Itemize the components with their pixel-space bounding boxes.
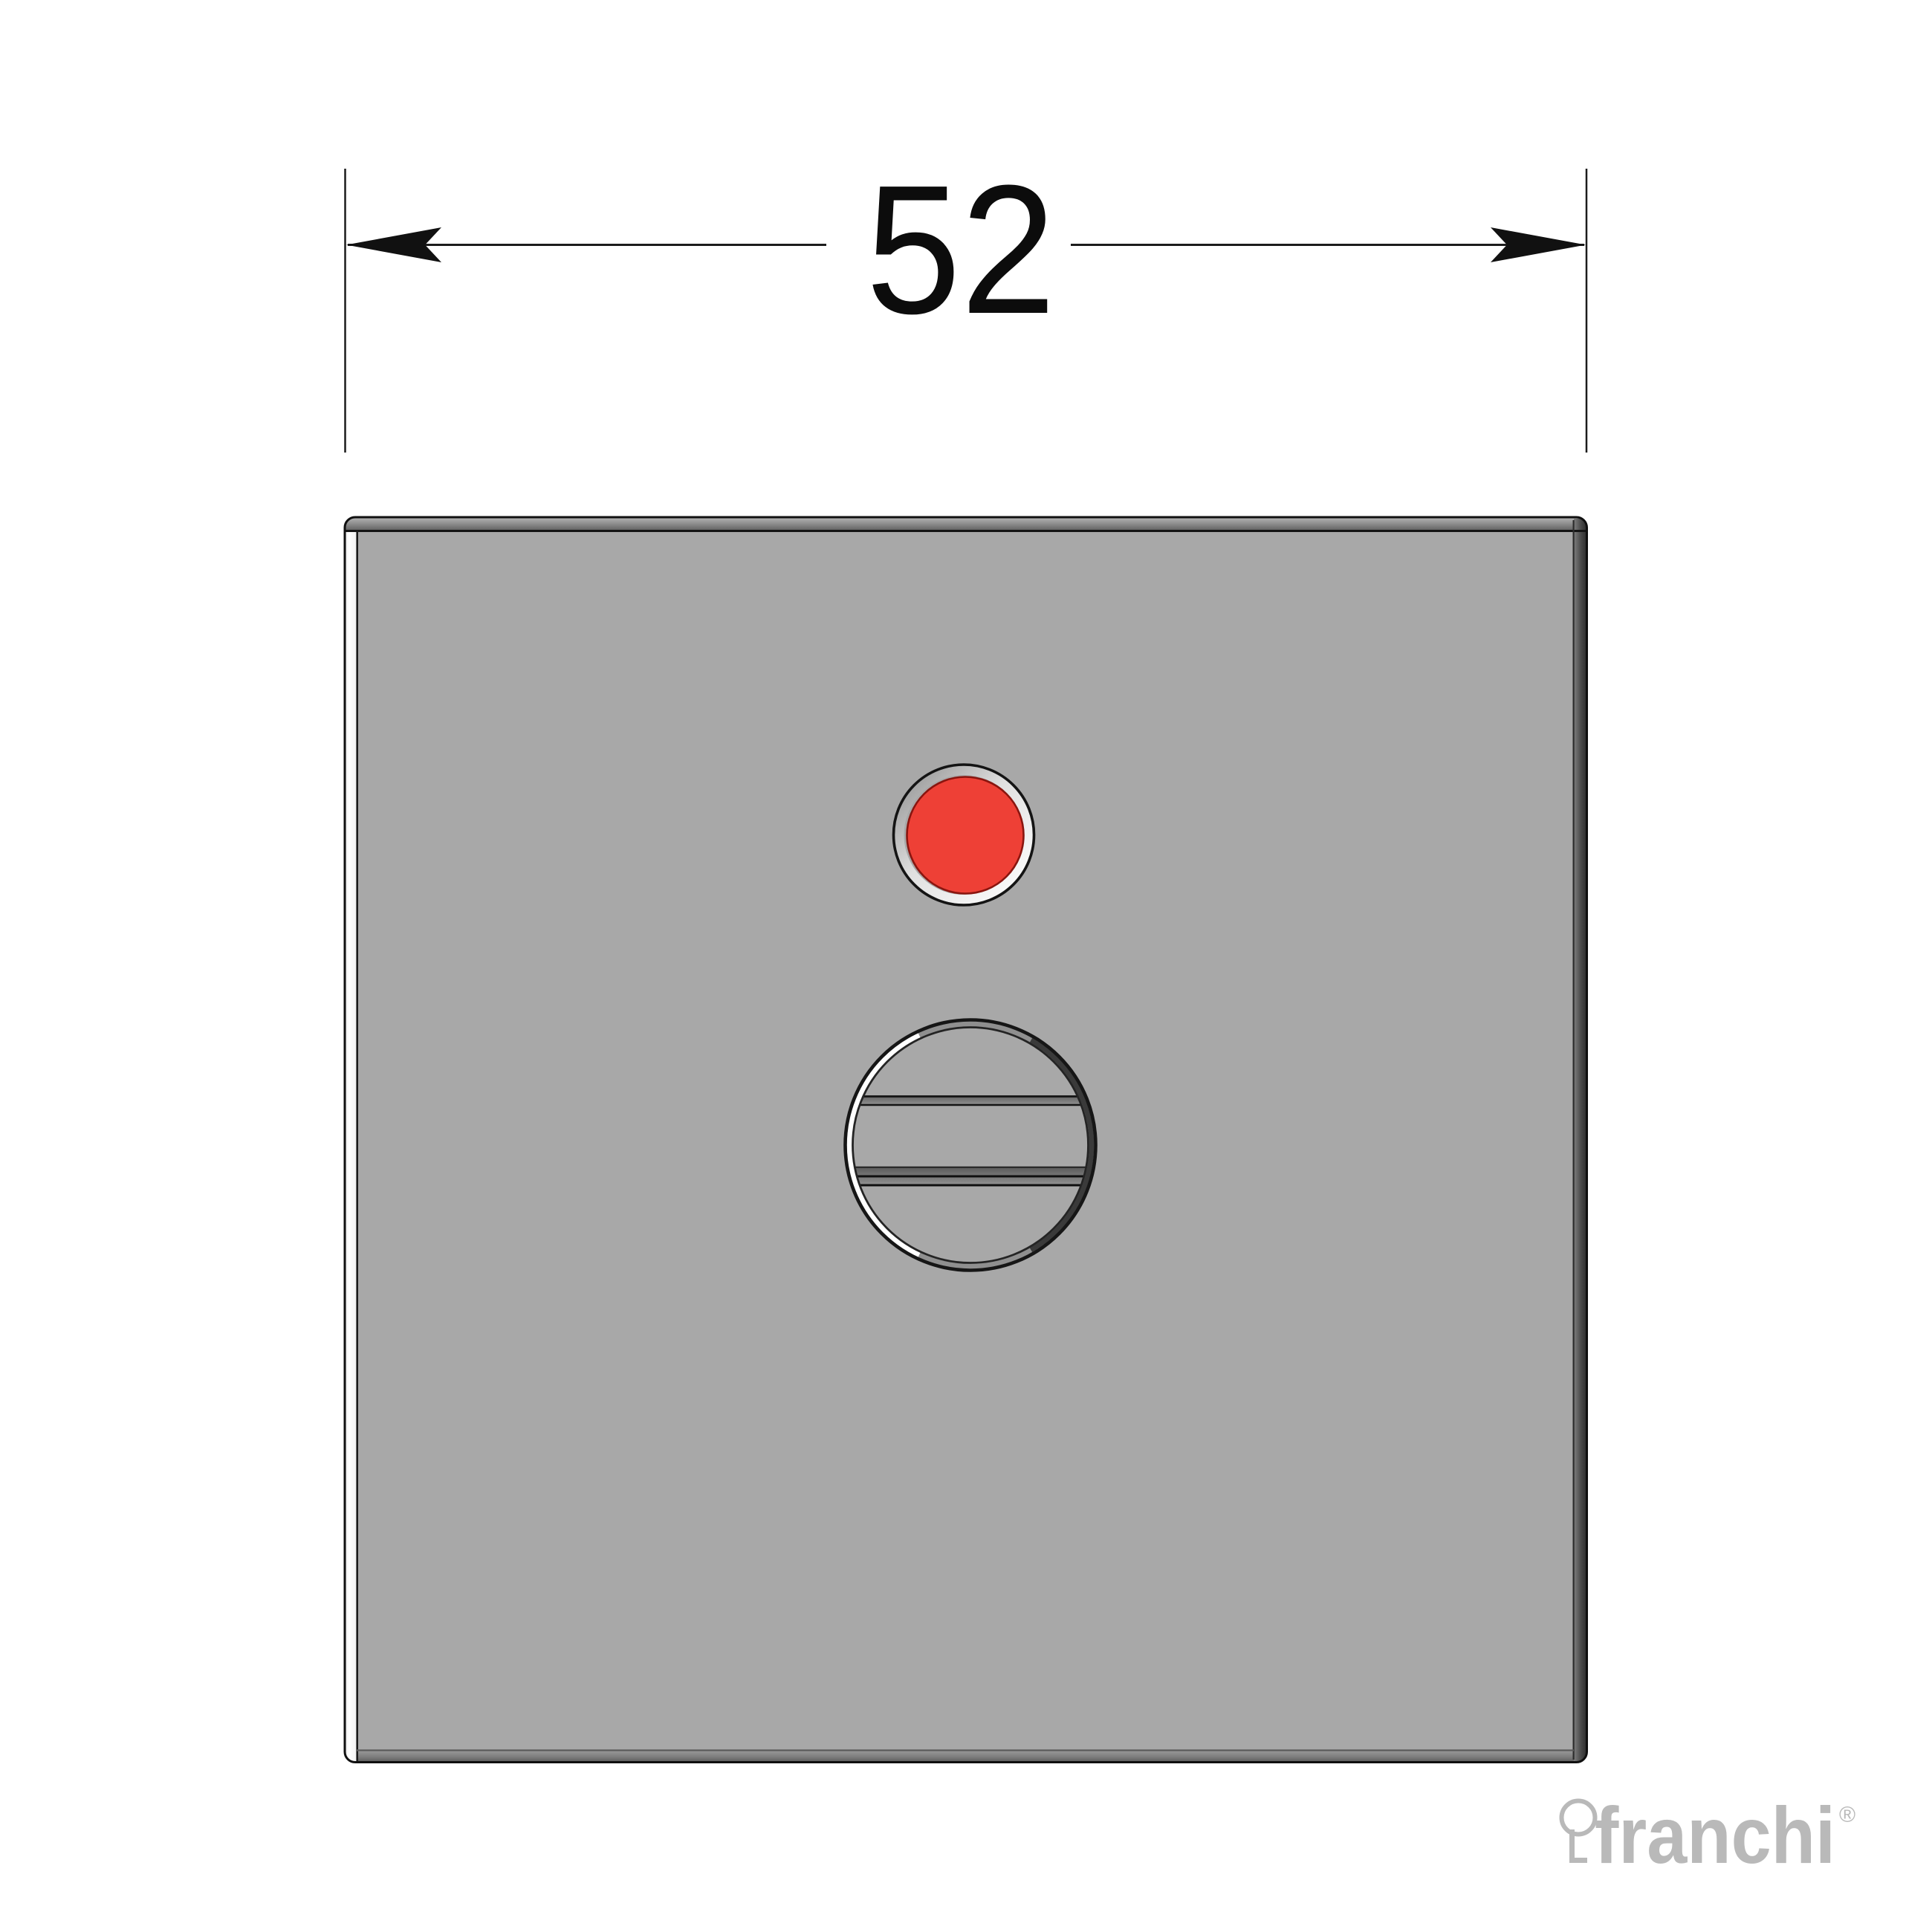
svg-text:franchi: franchi <box>1595 1790 1835 1880</box>
svg-text:®: ® <box>1839 1803 1855 1827</box>
svg-text:52: 52 <box>866 146 1056 352</box>
